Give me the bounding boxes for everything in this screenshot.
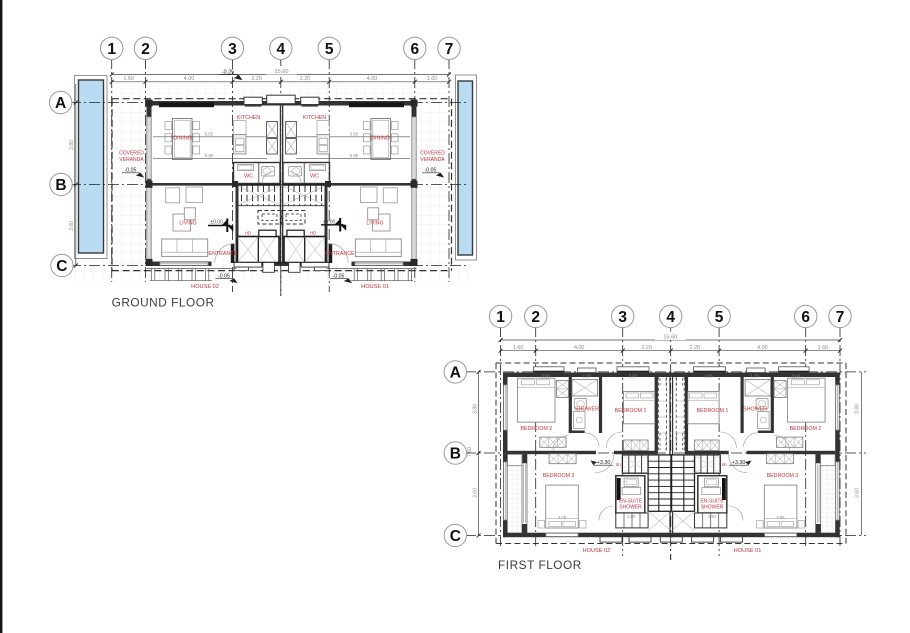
svg-text:4: 4 — [666, 309, 675, 326]
svg-text:DINING: DINING — [173, 136, 192, 142]
svg-text:B: B — [450, 446, 461, 463]
svg-text:4.00: 4.00 — [574, 345, 585, 351]
svg-text:4.05: 4.05 — [776, 515, 785, 520]
svg-text:SHOWER: SHOWER — [575, 407, 599, 413]
svg-text:15.60: 15.60 — [663, 335, 677, 341]
svg-text:BEDROOM 3: BEDROOM 3 — [767, 473, 799, 479]
svg-text:3.80: 3.80 — [473, 404, 479, 414]
svg-text:1: 1 — [107, 41, 116, 58]
svg-text:5.50: 5.50 — [205, 131, 214, 136]
svg-text:7: 7 — [445, 41, 454, 58]
svg-text:KITCHEN: KITCHEN — [237, 115, 260, 121]
svg-text:A: A — [450, 364, 461, 381]
svg-text:1.20: 1.20 — [751, 374, 760, 379]
svg-text:EN-SUITE: EN-SUITE — [700, 498, 724, 504]
svg-text:5: 5 — [325, 41, 334, 58]
svg-text:4.00: 4.00 — [184, 76, 195, 82]
svg-text:3: 3 — [618, 309, 627, 326]
svg-text:4.00: 4.00 — [757, 345, 768, 351]
svg-text:KITCHEN: KITCHEN — [303, 115, 326, 121]
svg-text:dn: dn — [722, 462, 727, 467]
svg-text:ENTRANCE: ENTRANCE — [325, 251, 355, 257]
svg-text:BEDROOM 2: BEDROOM 2 — [520, 426, 552, 432]
svg-text:1.20: 1.20 — [583, 374, 592, 379]
svg-text:6: 6 — [801, 309, 810, 326]
svg-text:DINING: DINING — [371, 136, 390, 142]
svg-text:C: C — [56, 258, 67, 275]
svg-text:7.60: 7.60 — [467, 447, 473, 457]
svg-text:SHOWER: SHOWER — [743, 407, 767, 413]
svg-text:4: 4 — [276, 41, 285, 58]
svg-text:HOUSE 02: HOUSE 02 — [583, 548, 611, 554]
svg-text:SHOWER: SHOWER — [701, 505, 724, 511]
svg-text:3.80: 3.80 — [69, 221, 75, 231]
svg-text:1.50: 1.50 — [627, 514, 636, 519]
svg-text:HD: HD — [310, 230, 316, 235]
svg-text:1.60: 1.60 — [818, 345, 829, 351]
svg-text:COVERED: COVERED — [119, 151, 144, 157]
svg-text:2: 2 — [141, 41, 150, 58]
svg-text:VERANDA: VERANDA — [420, 157, 445, 163]
svg-text:BEDROOM 2: BEDROOM 2 — [790, 426, 822, 432]
svg-text:SHOWER: SHOWER — [619, 505, 642, 511]
svg-text:GROUND FLOOR: GROUND FLOOR — [112, 296, 215, 310]
svg-text:HOUSE 01: HOUSE 01 — [361, 284, 389, 290]
svg-text:VERANDA: VERANDA — [119, 157, 144, 163]
svg-text:WC: WC — [310, 173, 319, 179]
svg-text:B: B — [55, 177, 66, 194]
svg-text:1.60: 1.60 — [427, 76, 438, 82]
svg-text:3.80: 3.80 — [855, 404, 861, 414]
svg-text:3: 3 — [228, 41, 237, 58]
svg-text:3.00: 3.00 — [792, 374, 801, 379]
svg-text:3.80: 3.80 — [69, 140, 75, 150]
svg-text:ENTRANCE: ENTRANCE — [208, 251, 238, 257]
svg-text:3.00: 3.00 — [629, 374, 638, 379]
svg-text:6: 6 — [410, 41, 419, 58]
svg-text:5.95: 5.95 — [350, 153, 359, 158]
svg-text:1.60: 1.60 — [513, 345, 524, 351]
svg-text:2: 2 — [531, 309, 540, 326]
svg-text:1.50: 1.50 — [708, 514, 717, 519]
svg-text:WC: WC — [244, 173, 253, 179]
svg-text:5: 5 — [715, 309, 724, 326]
svg-text:1: 1 — [496, 309, 505, 326]
svg-text:BEDROOM 1: BEDROOM 1 — [615, 408, 647, 414]
svg-text:LIVING: LIVING — [366, 221, 383, 227]
svg-text:2.20: 2.20 — [690, 345, 701, 351]
svg-text:EN-SUITE: EN-SUITE — [619, 498, 643, 504]
svg-text:HOUSE 01: HOUSE 01 — [734, 548, 762, 554]
svg-text:5.50: 5.50 — [350, 131, 359, 136]
svg-text:HD: HD — [245, 230, 251, 235]
svg-text:1.60: 1.60 — [123, 76, 134, 82]
svg-text:2.20: 2.20 — [300, 76, 311, 82]
svg-text:3.00: 3.00 — [541, 374, 550, 379]
svg-text:dn: dn — [616, 462, 621, 467]
svg-text:4.00: 4.00 — [367, 76, 378, 82]
svg-text:BEDROOM 3: BEDROOM 3 — [543, 473, 575, 479]
svg-text:4.05: 4.05 — [558, 515, 567, 520]
svg-text:A: A — [55, 95, 66, 112]
svg-text:C: C — [450, 528, 461, 545]
svg-text:3.00: 3.00 — [704, 374, 713, 379]
svg-text:5.95: 5.95 — [205, 153, 214, 158]
svg-text:FIRST FLOOR: FIRST FLOOR — [498, 558, 582, 572]
svg-text:LIVING: LIVING — [179, 221, 196, 227]
svg-text:2.20: 2.20 — [251, 76, 262, 82]
svg-text:3.60: 3.60 — [473, 488, 479, 498]
svg-text:7: 7 — [836, 309, 845, 326]
svg-text:BEDROOM 1: BEDROOM 1 — [697, 408, 729, 414]
svg-text:2.20: 2.20 — [641, 345, 652, 351]
svg-text:15.60: 15.60 — [275, 69, 289, 75]
svg-text:±0.00: ±0.00 — [210, 219, 223, 225]
svg-text:COVERED: COVERED — [420, 151, 445, 157]
svg-text:HOUSE 02: HOUSE 02 — [191, 284, 219, 290]
svg-text:3.60: 3.60 — [855, 488, 861, 498]
